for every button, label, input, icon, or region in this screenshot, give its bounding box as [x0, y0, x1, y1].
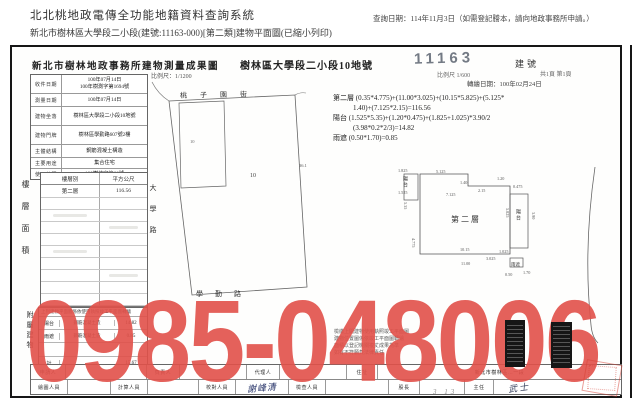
row-label: 主體結構: [31, 145, 62, 157]
inner-parcel-number: 10: [190, 139, 195, 144]
site-plan-scale: 比例尺：1/1200: [151, 71, 192, 80]
parcel-title: 樹林區大學段二小段10地號: [240, 57, 373, 72]
row-label: 建物坐落: [31, 107, 62, 125]
table-row: 測量日期 100年07月14日: [31, 94, 147, 107]
balcony-left-label: 陽台: [401, 176, 408, 188]
table-row: 主要用途 集合住宅: [31, 158, 147, 169]
dim-label: 5.825: [505, 208, 510, 217]
balcony-right-label: 陽台: [514, 209, 521, 221]
screenshot-root: { "page": { "system_title": "北北桃地政電傳全功能地…: [0, 0, 640, 408]
system-title: 北北桃地政電傳全功能地籍資料查詢系統: [30, 7, 255, 23]
row-value: 集合住宅: [94, 160, 115, 167]
dim-label: 0.475: [513, 184, 522, 189]
calc-line: (3.98*0.2*2/3)=14.82: [333, 123, 583, 133]
dim-label: 4.775: [411, 238, 416, 247]
row-label: 測量日期: [31, 94, 62, 106]
table-row: [41, 234, 147, 246]
street-name-top: 桃子園街: [180, 89, 260, 100]
redraw-date: 轉繪日期：100年02月24日: [467, 78, 542, 88]
table-row: [41, 210, 147, 222]
calc-line: 第二層 (0.35*4.775)+(11.00*3.025)+(10.15*5.…: [333, 93, 583, 103]
dim-label: 1.525: [398, 190, 407, 195]
row-value: 樹林區大學段二小段10地號: [73, 113, 135, 120]
dim-label: 10.15: [460, 247, 469, 252]
table-row: 建物坐落 樹林區大學段二小段10地號: [31, 107, 147, 126]
dim-label: 11.00: [461, 261, 470, 266]
red-seal-stamp: [581, 359, 622, 397]
dim-label: 7.125: [446, 192, 455, 197]
area-calculation-block: 第二層 (0.35*4.775)+(11.00*3.025)+(10.15*5.…: [333, 93, 583, 143]
building-number-label: 建號: [515, 57, 539, 70]
table-row: [41, 246, 147, 258]
building-number-stamp: 11163: [414, 49, 474, 68]
calc-line: 陽台 (1.525*5.35)+(1.20*0.475)+(1.825+1.02…: [333, 113, 583, 123]
table-row: 主體結構 鋼筋混凝土構造: [31, 145, 147, 158]
building-info-table: 收件日期 100年07月14日100年樹測字第1694號 測量日期 100年07…: [30, 74, 148, 180]
row-value: 100年07月14日: [88, 97, 122, 104]
canopy-label: 雨遮: [511, 262, 520, 268]
table-row: 第二層 116.56: [41, 185, 147, 198]
dim-label: 2.15: [478, 188, 485, 193]
site-plan-drawing: [148, 76, 326, 308]
scale-note: 比例尺 1/600: [437, 70, 470, 79]
ink-stamp: [505, 320, 525, 367]
table-row: 收件日期 100年07月14日100年樹測字第1694號: [31, 75, 147, 94]
document-subtitle: 新北市樹林區大學段二小段(建號:11163-000)[第二類]建物平面圖(已縮小…: [30, 26, 332, 39]
dim-label: 1.825: [398, 168, 407, 173]
survey-doc-title: 新北市樹林地政事務所建物測量成果圖: [32, 58, 219, 72]
dim-label: 5.35: [403, 202, 408, 209]
row-value: 樹林區學勤路607號2樓: [79, 132, 131, 139]
floor-area-value: 116.56: [100, 185, 147, 197]
dim-label: 1.70: [523, 270, 530, 275]
row-label: 主要用途: [31, 158, 62, 168]
query-date-note: 查詢日期：114年11月3日（如需登記謄本，請向地政事務所申請。）: [373, 13, 594, 24]
pencil-date-note: 3 13: [433, 388, 457, 396]
calc-line: 1.40)+(7.125*2.15)=116.56: [333, 103, 583, 113]
scan-edge-line: [630, 45, 632, 398]
row-label: 收件日期: [31, 75, 62, 93]
table-row: [41, 222, 147, 234]
row-value: 鋼筋混凝土構造: [86, 148, 122, 155]
table-row: [41, 198, 147, 210]
col-sqm: 平方公尺: [100, 173, 147, 184]
dim-label: 1.20: [497, 176, 504, 181]
dim-label: 1.40: [460, 180, 467, 185]
site-dimension: 36.1: [299, 163, 307, 168]
dim-label: 1.025: [499, 249, 508, 254]
page-count-note: 共1頁 第1頁: [540, 69, 572, 78]
street-name-left: 大學路: [148, 184, 158, 270]
table-header-row: 樓層別 平方公尺: [41, 173, 147, 185]
col-floor: 樓層別: [41, 173, 100, 184]
ink-stamp: [551, 322, 572, 368]
floor-name: 第二層: [41, 185, 100, 197]
row-label: 建物門牌: [31, 126, 62, 144]
dim-label: 3.025: [486, 256, 495, 261]
dim-label: 3.90: [531, 212, 536, 219]
table-row: 建物門牌 樹林區學勤路607號2樓: [31, 126, 147, 145]
floor-room-label: 第二層: [451, 214, 481, 225]
parcel-number-label: 10: [250, 173, 256, 179]
dim-label: 5.125: [436, 169, 445, 174]
row-value-2: 100年樹測字第1694號: [80, 84, 129, 91]
table-row: [41, 258, 147, 270]
row-value: 100年07月14日: [88, 77, 122, 84]
calc-line: 雨遮 (0.50*1.70)=0.85: [333, 133, 583, 143]
